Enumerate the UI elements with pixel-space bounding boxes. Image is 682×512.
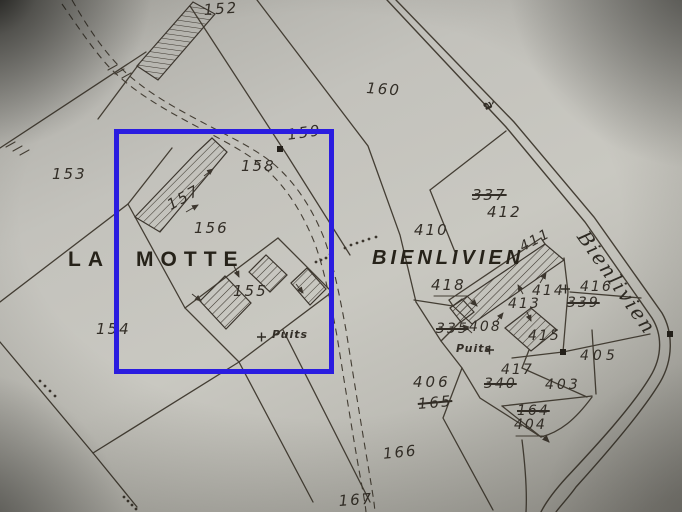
struck-parcel-label-335: 335 (436, 321, 469, 337)
struck-parcel-label-165: 165 (417, 392, 453, 413)
parcel-label-405: 405 (580, 348, 619, 364)
parcel-label-404: 404 (514, 417, 547, 433)
highlight-rectangle (114, 129, 334, 374)
struck-parcel-label-337: 337 (472, 186, 507, 204)
map-photo: 152 153 160 159 158 157 156 155 154 166 … (0, 0, 682, 512)
parcel-label-403: 403 (545, 377, 581, 393)
well-label-puits-east: Puits (456, 342, 492, 355)
parcel-label-410: 410 (414, 221, 449, 239)
parcel-label-412: 412 (487, 203, 522, 221)
parcel-label-152: 152 (203, 0, 239, 19)
parcel-label-153: 153 (52, 165, 87, 183)
parcel-label-406: 406 (413, 373, 451, 391)
parcel-label-415: 415 (528, 328, 561, 344)
parcel-label-167: 167 (338, 490, 374, 510)
parcel-label-160: 160 (366, 79, 402, 99)
parcel-label-166: 166 (382, 441, 418, 463)
struck-parcel-label-340: 340 (484, 376, 517, 392)
parcel-label-418: 418 (431, 276, 466, 294)
area-name-bienlivien: BIENLIVIEN (372, 247, 524, 270)
parcel-label-413: 413 (508, 296, 541, 312)
parcel-label-408: 408 (469, 319, 502, 335)
struck-parcel-label-339: 339 (567, 295, 600, 311)
